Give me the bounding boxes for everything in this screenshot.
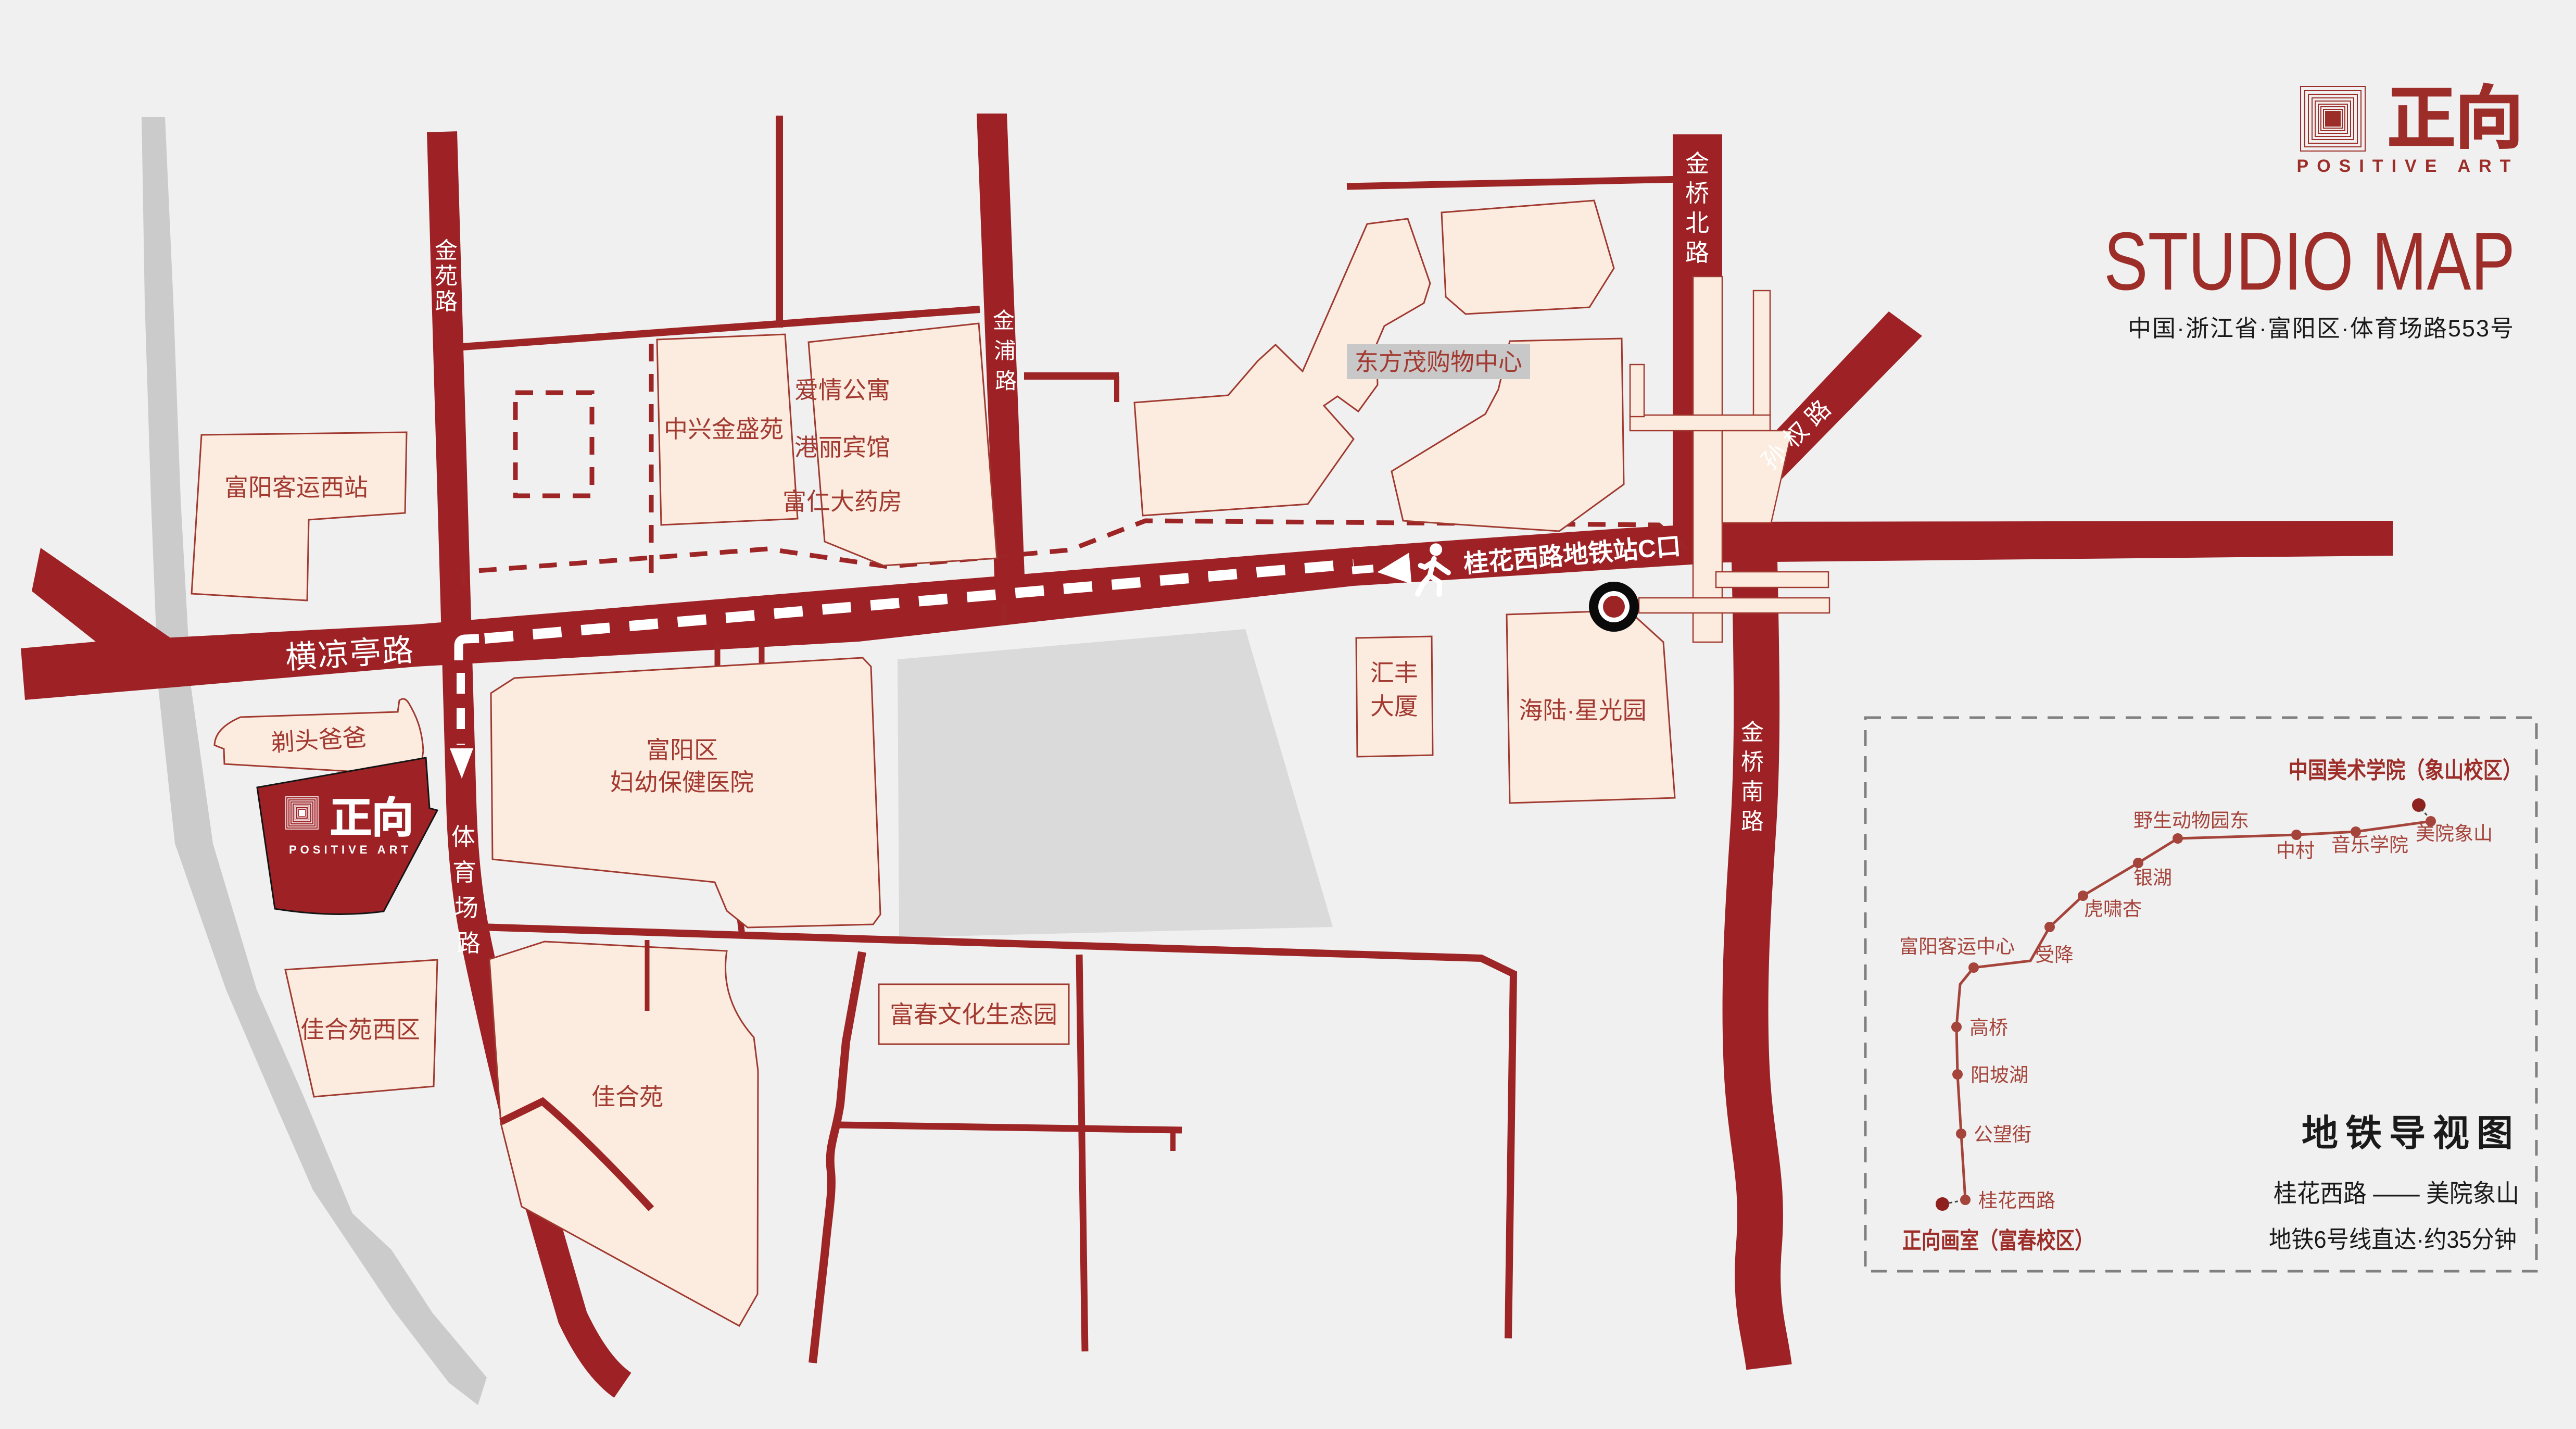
svg-text:体: 体 <box>451 823 475 850</box>
svg-text:中国美术学院（象山校区）: 中国美术学院（象山校区） <box>2289 758 2522 783</box>
svg-text:大厦: 大厦 <box>1370 693 1418 720</box>
svg-text:海陆·星光园: 海陆·星光园 <box>1519 697 1646 724</box>
svg-text:苑: 苑 <box>435 264 458 289</box>
svg-text:桥: 桥 <box>1741 749 1764 775</box>
svg-text:高桥: 高桥 <box>1969 1017 2008 1038</box>
svg-text:佳合苑西区: 佳合苑西区 <box>300 1016 420 1043</box>
svg-text:南: 南 <box>1741 779 1764 805</box>
svg-text:路: 路 <box>457 930 481 957</box>
svg-text:中国·浙江省·富阳区·体育场路553号: 中国·浙江省·富阳区·体育场路553号 <box>2128 315 2515 342</box>
svg-text:富仁大药房: 富仁大药房 <box>782 488 902 515</box>
svg-text:地铁导视图: 地铁导视图 <box>2302 1113 2520 1154</box>
svg-text:正向: 正向 <box>2388 80 2523 156</box>
svg-text:育: 育 <box>452 859 476 886</box>
svg-text:虎啸杏: 虎啸杏 <box>2084 898 2142 920</box>
svg-text:佳合苑: 佳合苑 <box>591 1083 663 1110</box>
svg-text:桥: 桥 <box>1685 180 1709 207</box>
svg-text:妇幼保健医院: 妇幼保健医院 <box>610 769 754 796</box>
svg-text:银湖: 银湖 <box>2133 867 2172 888</box>
svg-text:音乐学院: 音乐学院 <box>2331 834 2408 856</box>
svg-text:中兴金盛苑: 中兴金盛苑 <box>664 416 784 443</box>
svg-text:港丽宾馆: 港丽宾馆 <box>794 434 890 461</box>
svg-text:正向画室（富春校区）: 正向画室（富春校区） <box>1902 1227 2094 1253</box>
svg-text:桂花西路: 桂花西路 <box>1978 1190 2055 1211</box>
svg-text:富阳客运西站: 富阳客运西站 <box>224 474 368 501</box>
svg-text:美院象山: 美院象山 <box>2416 823 2493 844</box>
svg-text:爱情公寓: 爱情公寓 <box>794 377 890 404</box>
svg-text:公望街: 公望街 <box>1974 1124 2031 1145</box>
svg-text:地铁6号线直达·约35分钟: 地铁6号线直达·约35分钟 <box>2269 1226 2517 1253</box>
svg-text:富阳客运中心: 富阳客运中心 <box>1899 936 2015 957</box>
svg-text:北: 北 <box>1685 209 1709 236</box>
svg-text:路: 路 <box>435 289 458 315</box>
svg-text:浦: 浦 <box>994 339 1016 363</box>
svg-text:富阳区: 富阳区 <box>646 736 718 763</box>
svg-text:受降: 受降 <box>2035 944 2074 966</box>
svg-text:中村: 中村 <box>2276 840 2315 861</box>
svg-text:金: 金 <box>1685 150 1709 177</box>
svg-text:金: 金 <box>993 308 1015 333</box>
svg-text:POSITIVE ART: POSITIVE ART <box>289 843 412 856</box>
svg-text:场: 场 <box>454 894 478 921</box>
svg-text:富春文化生态园: 富春文化生态园 <box>890 1001 1057 1028</box>
svg-text:路: 路 <box>1685 239 1709 266</box>
svg-text:金: 金 <box>435 238 458 264</box>
svg-text:POSITIVE ART: POSITIVE ART <box>2297 156 2519 176</box>
svg-text:东方茂购物中心: 东方茂购物中心 <box>1355 348 1522 375</box>
svg-text:正向: 正向 <box>330 795 413 841</box>
svg-text:STUDIO MAP: STUDIO MAP <box>2104 216 2515 307</box>
svg-text:桂花西路 —— 美院象山: 桂花西路 —— 美院象山 <box>2274 1180 2519 1208</box>
svg-text:阳坡湖: 阳坡湖 <box>1971 1064 2028 1086</box>
svg-text:金: 金 <box>1741 720 1764 745</box>
svg-text:路: 路 <box>1741 809 1764 834</box>
svg-text:汇丰: 汇丰 <box>1370 659 1418 686</box>
svg-text:野生动物园东: 野生动物园东 <box>2133 810 2249 831</box>
svg-text:路: 路 <box>995 369 1017 393</box>
